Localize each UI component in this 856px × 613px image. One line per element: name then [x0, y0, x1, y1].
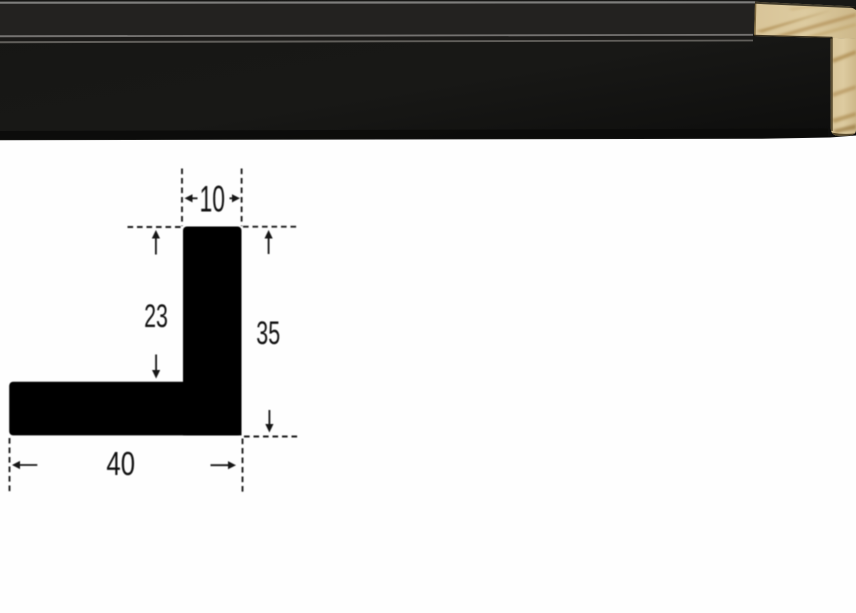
- svg-text:40: 40: [106, 446, 135, 483]
- svg-text:10: 10: [199, 178, 225, 220]
- svg-text:35: 35: [256, 315, 280, 351]
- svg-text:23: 23: [144, 297, 168, 333]
